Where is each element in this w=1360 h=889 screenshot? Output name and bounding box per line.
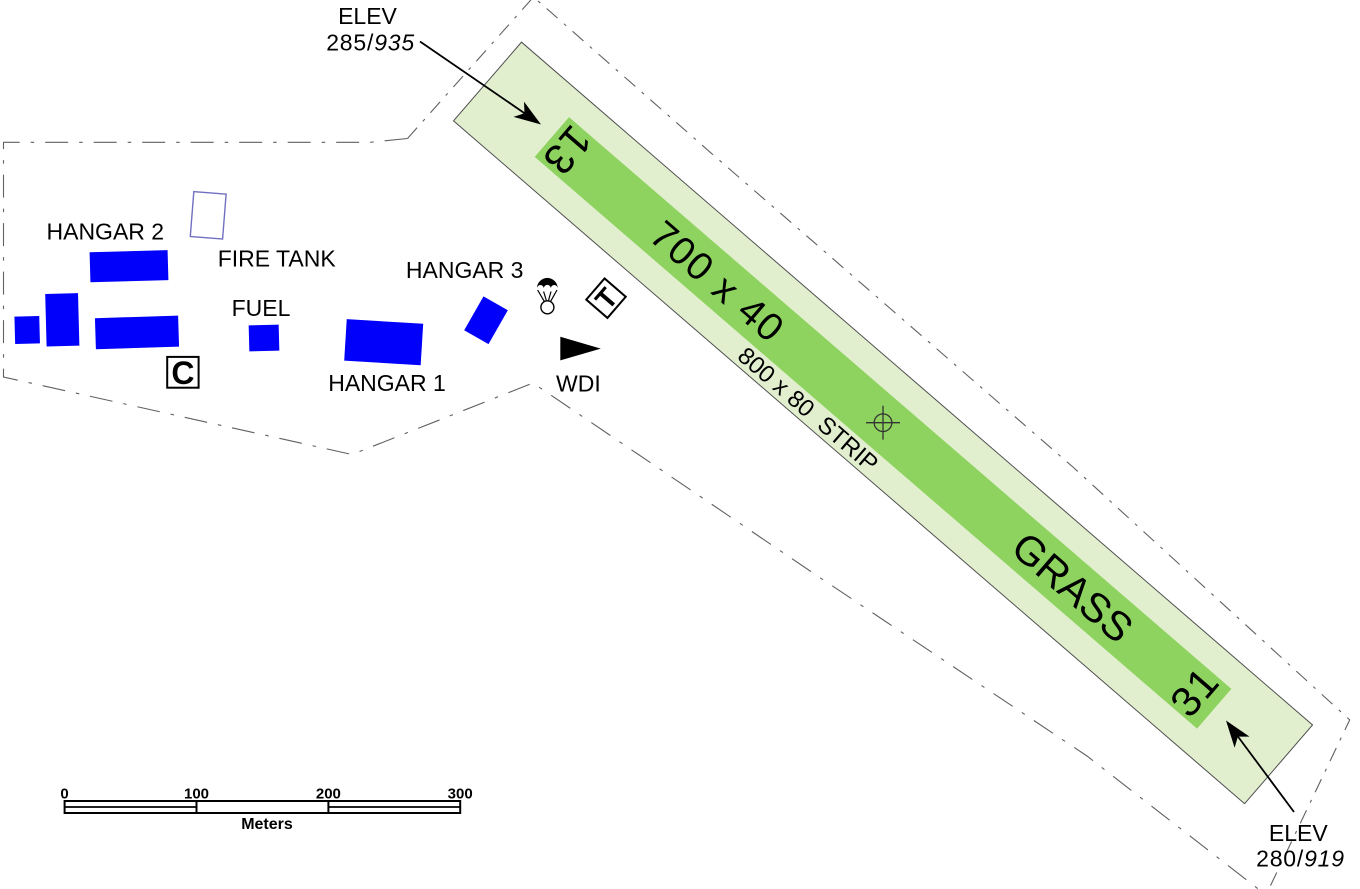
svg-text:100: 100 bbox=[184, 786, 209, 803]
svg-text:285/935: 285/935 bbox=[326, 30, 415, 56]
svg-text:HANGAR 3: HANGAR 3 bbox=[406, 257, 524, 283]
svg-text:FIRE TANK: FIRE TANK bbox=[218, 245, 337, 271]
svg-text:HANGAR 1: HANGAR 1 bbox=[328, 370, 446, 396]
svg-text:280/919: 280/919 bbox=[1256, 846, 1345, 872]
svg-text:0: 0 bbox=[60, 786, 68, 803]
svg-text:300: 300 bbox=[448, 786, 473, 803]
svg-text:FUEL: FUEL bbox=[232, 295, 291, 321]
svg-text:ELEV: ELEV bbox=[1269, 820, 1328, 846]
svg-text:Meters: Meters bbox=[241, 816, 293, 833]
svg-text:HANGAR 2: HANGAR 2 bbox=[47, 219, 165, 245]
svg-text:ELEV: ELEV bbox=[338, 3, 397, 29]
svg-text:C: C bbox=[171, 355, 194, 391]
svg-text:WDI: WDI bbox=[556, 371, 601, 397]
svg-text:200: 200 bbox=[316, 786, 341, 803]
